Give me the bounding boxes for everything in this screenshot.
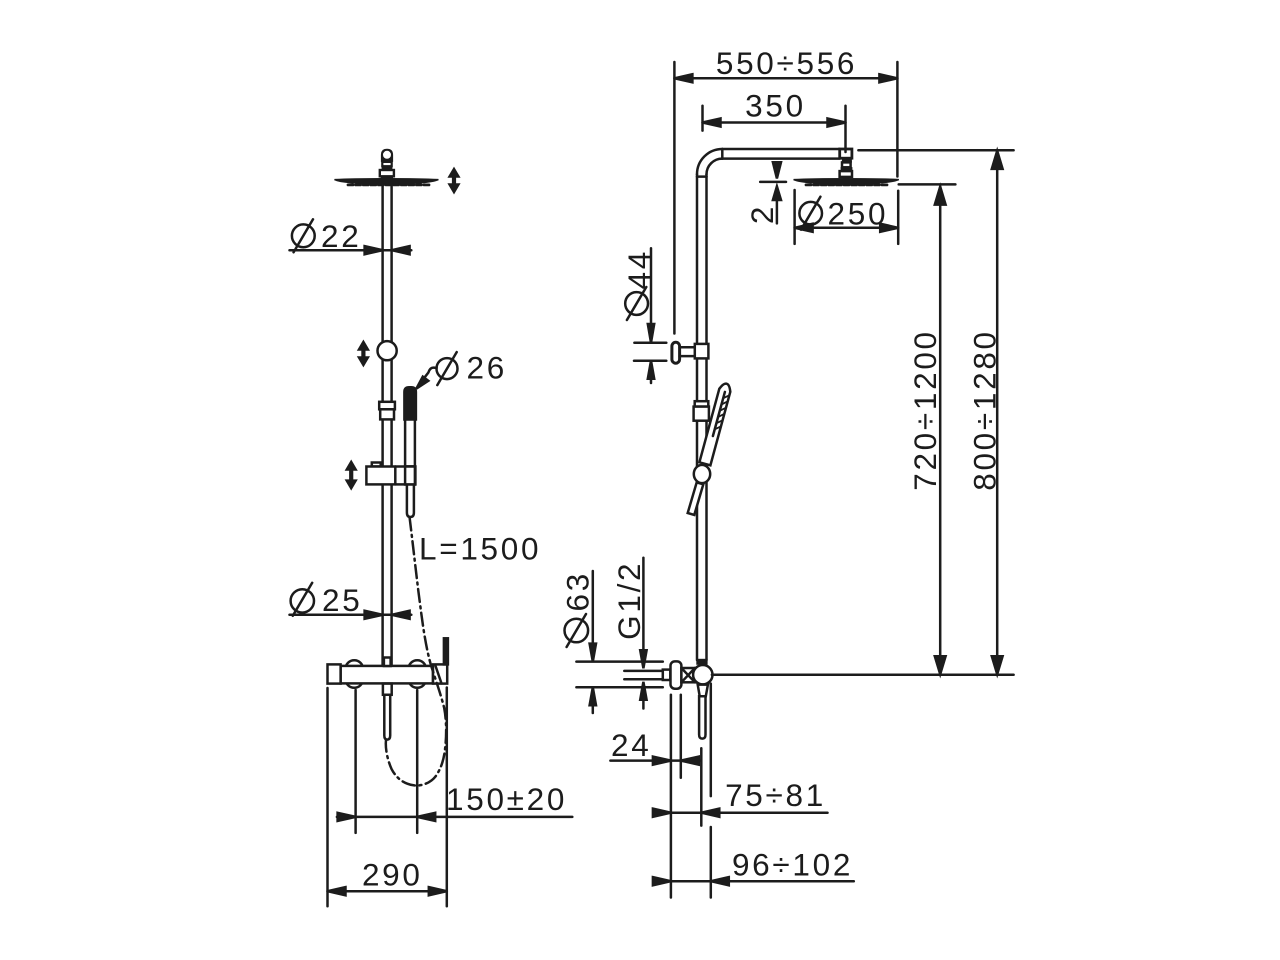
svg-text:250: 250 bbox=[828, 195, 889, 231]
svg-text:290: 290 bbox=[362, 856, 423, 892]
svg-text:720÷1200: 720÷1200 bbox=[907, 329, 943, 491]
svg-text:75÷81: 75÷81 bbox=[725, 777, 826, 813]
svg-text:800÷1280: 800÷1280 bbox=[967, 329, 1003, 491]
svg-text:150±20: 150±20 bbox=[446, 781, 567, 817]
svg-text:350: 350 bbox=[745, 87, 806, 123]
svg-text:25: 25 bbox=[322, 582, 362, 618]
svg-text:2: 2 bbox=[744, 204, 780, 224]
svg-text:26: 26 bbox=[467, 350, 507, 386]
svg-text:22: 22 bbox=[321, 218, 361, 254]
svg-text:550÷556: 550÷556 bbox=[716, 45, 857, 81]
svg-text:44: 44 bbox=[621, 249, 657, 289]
svg-text:63: 63 bbox=[560, 571, 596, 611]
svg-text:G1/2: G1/2 bbox=[611, 561, 647, 640]
svg-text:L=1500: L=1500 bbox=[419, 531, 541, 567]
svg-text:96÷102: 96÷102 bbox=[732, 846, 853, 882]
svg-text:24: 24 bbox=[611, 727, 651, 763]
